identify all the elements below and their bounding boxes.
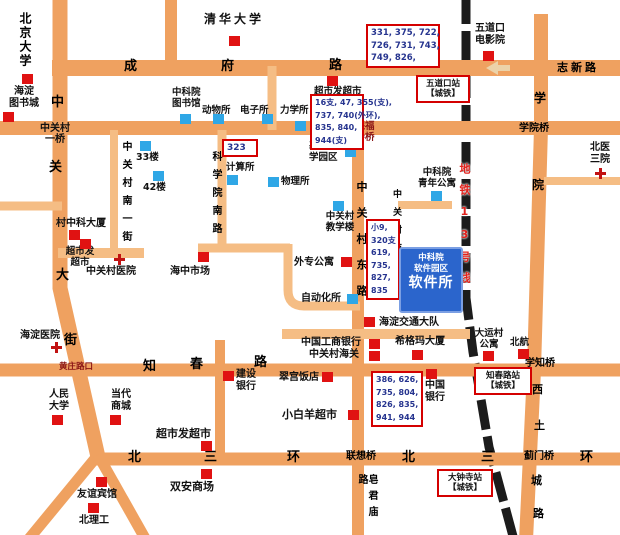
poi-label-icbc: 中国工商银行 bbox=[301, 337, 361, 349]
road-label-chengfu-1: 成 bbox=[124, 60, 137, 74]
bridge-label-jimen-qiao: 蓟门桥 bbox=[524, 451, 554, 462]
bus-stop-box-zhichun: 386, 626, 735, 804, 826, 835, 941, 944 bbox=[371, 371, 423, 427]
marker-zgc-teaching-building bbox=[333, 201, 344, 211]
poi-label-haizhong-market: 海中市场 bbox=[170, 266, 210, 278]
road-label-zaojunmiao-lu: 皂君庙路 bbox=[356, 474, 376, 535]
hq-line3: 软件所 bbox=[401, 274, 461, 292]
poi-label-beiyi-hospital: 北医 三院 bbox=[581, 142, 619, 165]
marker-experts-apartment bbox=[341, 257, 352, 267]
marker-wudaokou-cinema bbox=[483, 51, 494, 61]
poi-label-mechanics-institute: 力学所 bbox=[280, 105, 309, 116]
poi-label-cuigong-hotel: 翠宫饭店 bbox=[279, 372, 319, 384]
poi-label-beihang: 北航 bbox=[510, 337, 529, 348]
poi-label-sigma-plaza: 希格玛大厦 bbox=[395, 336, 445, 348]
bridge-label-lianxiang-qiao: 联想桥 bbox=[346, 451, 376, 462]
marker-zhongke-plaza bbox=[69, 230, 80, 240]
road-label-xueyuan-1: 学 bbox=[534, 91, 546, 105]
poi-label-beijing-university: 北京大学 bbox=[19, 12, 31, 68]
hospital-cross-icon-zgc bbox=[114, 254, 125, 265]
road-label-zhichun-3: 路 bbox=[254, 356, 267, 370]
marker-bank-of-china bbox=[426, 369, 437, 379]
marker-physics-institute bbox=[268, 177, 279, 187]
poi-label-computing-institute: 计算所 bbox=[226, 162, 255, 173]
station-box-dazhongsi: 大钟寺站 【城铁】 bbox=[437, 469, 493, 497]
marker-zoology-institute bbox=[213, 114, 224, 124]
marker-traffic-brigade bbox=[364, 317, 375, 327]
road-label-zgc-dajie-2: 关 bbox=[49, 161, 62, 175]
road-label-xueyuan-2: 院 bbox=[532, 178, 544, 192]
road-label-chengfu-2: 府 bbox=[221, 60, 234, 74]
poi-label-zhongke-plaza: 村中科大厦 bbox=[56, 218, 106, 230]
poi-label-zgc-teaching-building: 中关村 教学楼 bbox=[318, 211, 362, 233]
road-label-zhichun-2: 春 bbox=[190, 358, 203, 372]
road-label-sanhuan-w-1: 北 bbox=[128, 451, 141, 465]
station-box-zhichunlu: 知春路站 【城铁】 bbox=[474, 367, 532, 395]
road-label-zgc-dajie-4: 街 bbox=[64, 334, 77, 348]
poi-label-physics-institute: 物理所 bbox=[281, 176, 310, 187]
poi-label-qinghua-university: 清华大学 bbox=[204, 13, 264, 26]
road-label-nanyijie: 中关村南一街 bbox=[120, 141, 130, 249]
bus-stop-box-chengfu: 331, 375, 722, 726, 731, 743, 749, 826, bbox=[366, 24, 440, 68]
poi-label-cas-youth-apartment: 中科院 青年公寓 bbox=[413, 167, 461, 189]
poi-label-chaoshifa-south: 超市发超市 bbox=[156, 428, 211, 441]
poi-label-building-33: 33楼 bbox=[136, 152, 159, 163]
poi-label-friendship-hotel: 友谊宾馆 bbox=[77, 489, 117, 501]
poi-label-chaoshifa-west: 超市发 超市 bbox=[60, 246, 100, 268]
road-label-zhixin-lu: 志新路 bbox=[557, 61, 599, 75]
marker-mechanics-institute bbox=[295, 121, 306, 131]
road-label-sanhuan-e-3: 环 bbox=[580, 451, 593, 465]
marker-dangdai-mall bbox=[110, 415, 121, 425]
marker-zgc-customs bbox=[369, 351, 380, 361]
poi-label-dayuncun-apartment: 大运村 公寓 bbox=[467, 328, 511, 350]
road-label-sanhuan-e-1: 北 bbox=[402, 451, 415, 465]
marker-renmin-university bbox=[52, 415, 63, 425]
poi-label-experts-apartment: 外专公寓 bbox=[294, 257, 334, 269]
road-label-xitucheng-2: 土 bbox=[534, 419, 545, 433]
marker-beijing-university bbox=[22, 74, 33, 84]
road-label-sanhuan-w-2: 三 bbox=[204, 451, 217, 465]
bus-stop-box-donglu: 小9, 320支 619, 735, 827, 835 bbox=[366, 219, 400, 300]
road-label-zgc-dajie-1: 中 bbox=[51, 96, 64, 110]
poi-label-zgc-customs: 中关村海关 bbox=[309, 349, 359, 361]
hospital-cross-icon-beiyi bbox=[595, 168, 606, 179]
marker-construction-bank bbox=[223, 371, 234, 381]
hospital-cross-icon-haidian bbox=[51, 342, 62, 353]
marker-cuigong-hotel bbox=[322, 372, 333, 382]
poi-label-shuangan-mall: 双安商场 bbox=[170, 481, 214, 494]
road-label-xitucheng-4: 路 bbox=[533, 507, 544, 521]
marker-haidian-book-city bbox=[3, 112, 14, 122]
marker-sigma-plaza bbox=[412, 350, 423, 360]
transit-map: 成 府 路 志新路 中 关 大 街 学 院 西 土 城 路 知 春 路 北 三 … bbox=[0, 0, 620, 535]
marker-cas-library bbox=[180, 114, 191, 124]
marker-computing-institute bbox=[227, 175, 238, 185]
road-label-xitucheng-1: 西 bbox=[532, 383, 543, 397]
poi-label-xiaobaiyang: 小白羊超市 bbox=[282, 409, 337, 422]
poi-label-cas-library: 中科院 图书馆 bbox=[172, 87, 201, 109]
marker-beihang bbox=[518, 349, 529, 359]
marker-building-33 bbox=[140, 141, 151, 151]
marker-beiligong bbox=[88, 503, 99, 513]
road-label-sanhuan-e-2: 三 bbox=[481, 451, 494, 465]
bus-route-box-323: 323 bbox=[222, 139, 258, 157]
marker-chaoshifa-west bbox=[80, 239, 91, 249]
poi-label-haidian-book-city: 海淀 图书城 bbox=[0, 86, 48, 109]
road-label-chengfu-3: 路 bbox=[329, 59, 342, 73]
hq-line2: 软件园区 bbox=[401, 264, 461, 275]
bridge-label-xueyuan-qiao: 学院桥 bbox=[519, 123, 549, 134]
marker-qinghua-university bbox=[229, 36, 240, 46]
marker-friendship-hotel bbox=[96, 477, 107, 487]
bridge-label-huangzhuang-lukou: 黄庄路口 bbox=[59, 362, 93, 373]
road-label-zhichun-1: 知 bbox=[143, 360, 156, 374]
road-label-sanhuan-w-3: 环 bbox=[287, 451, 300, 465]
bridge-label-zgc-yiqiao: 中关村 一桥 bbox=[31, 123, 79, 145]
marker-building-42 bbox=[153, 171, 164, 181]
poi-label-renmin-university: 人民 大学 bbox=[40, 389, 78, 412]
marker-icbc bbox=[369, 339, 380, 349]
hq-line1: 中科院 bbox=[401, 253, 461, 264]
poi-label-building-42: 42楼 bbox=[143, 182, 166, 193]
marker-haizhong-market bbox=[198, 252, 209, 262]
software-institute-box: 中科院 软件园区 软件所 bbox=[399, 247, 463, 313]
marker-chaoshifa-north bbox=[327, 76, 338, 86]
poi-label-dangdai-mall: 当代 商城 bbox=[102, 389, 140, 412]
poi-label-beiligong: 北理工 bbox=[79, 515, 109, 527]
road-label-xitucheng-3: 城 bbox=[531, 474, 542, 488]
marker-electronics-institute bbox=[262, 114, 273, 124]
marker-xiaobaiyang bbox=[348, 410, 359, 420]
marker-cas-youth-apartment bbox=[431, 191, 442, 201]
poi-label-automation-institute: 自动化所 bbox=[301, 293, 341, 305]
bus-stop-box-baofusi: 16支, 47, 355(支), 737, 740(外环), 835, 840,… bbox=[310, 94, 364, 150]
road-label-zgc-dajie-3: 大 bbox=[56, 269, 69, 283]
road-label-kexueyuan-nanlu: 科学院南路 bbox=[210, 151, 220, 241]
poi-label-wudaokou-cinema: 五道口 电影院 bbox=[468, 23, 512, 46]
marker-shuangan-mall bbox=[201, 469, 212, 479]
marker-automation-institute bbox=[347, 294, 358, 304]
poi-label-zgc-hospital: 中关村医院 bbox=[86, 266, 136, 278]
poi-label-traffic-brigade: 海淀交通大队 bbox=[379, 317, 439, 329]
poi-label-construction-bank: 建设 银行 bbox=[236, 369, 256, 392]
marker-dayuncun-apartment bbox=[483, 351, 494, 361]
station-box-wudaokou: 五道口站 【城铁】 bbox=[416, 75, 470, 103]
poi-label-haidian-hospital: 海淀医院 bbox=[20, 330, 60, 342]
marker-chaoshifa-south bbox=[201, 441, 212, 451]
